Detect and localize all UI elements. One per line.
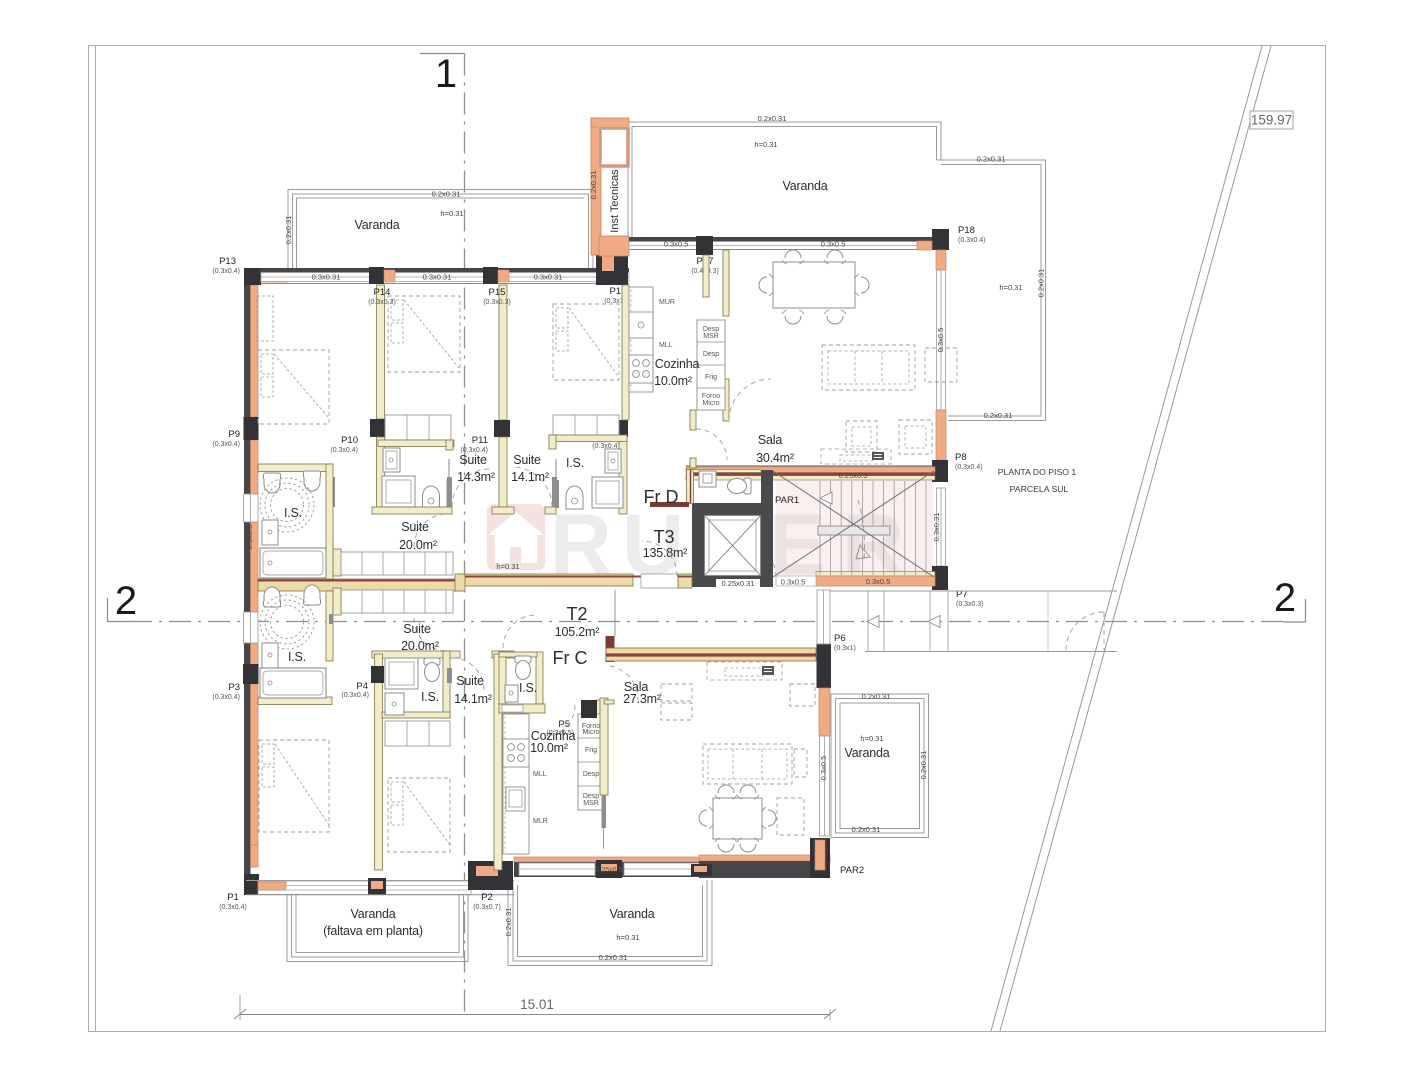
svg-text:I.S.: I.S. — [566, 456, 584, 470]
svg-text:Desp: Desp — [583, 793, 599, 800]
svg-text:PARCELA SUL: PARCELA SUL — [1010, 484, 1069, 494]
svg-text:I.S.: I.S. — [519, 681, 537, 695]
svg-text:I.S.: I.S. — [284, 506, 302, 520]
svg-text:Frig: Frig — [705, 374, 717, 381]
svg-text:14.1m²: 14.1m² — [454, 692, 492, 706]
svg-text:h=0.31: h=0.31 — [616, 933, 639, 942]
svg-text:0.25x0.5: 0.25x0.5 — [839, 471, 868, 480]
svg-text:Varanda: Varanda — [783, 179, 828, 193]
svg-text:MSR: MSR — [703, 333, 719, 340]
svg-text:P15: P15 — [489, 287, 506, 298]
svg-text:0.3x0.5: 0.3x0.5 — [936, 328, 945, 353]
svg-text:0.2x0.31: 0.2x0.31 — [984, 411, 1013, 420]
svg-text:Suite: Suite — [403, 622, 431, 636]
svg-text:(0.3x0.4): (0.3x0.4) — [958, 237, 986, 244]
svg-text:P14: P14 — [374, 287, 391, 298]
svg-text:Suite: Suite — [459, 453, 487, 467]
svg-text:h=0.31: h=0.31 — [860, 734, 883, 743]
svg-text:Micro: Micro — [702, 400, 719, 407]
svg-text:T2: T2 — [566, 604, 587, 624]
svg-text:(0.3x0.4): (0.3x0.4) — [219, 904, 247, 911]
svg-text:(faltava em planta): (faltava em planta) — [323, 924, 423, 938]
svg-text:0.2x0.31: 0.2x0.31 — [852, 825, 881, 834]
svg-text:0.3x0.31: 0.3x0.31 — [312, 273, 341, 282]
svg-text:P10: P10 — [341, 435, 358, 446]
svg-text:(0.3x0.4): (0.3x0.4) — [955, 464, 983, 471]
svg-text:30.4m²: 30.4m² — [756, 451, 794, 465]
svg-text:0.3x0.5: 0.3x0.5 — [781, 578, 806, 587]
svg-text:Varanda: Varanda — [610, 907, 655, 921]
svg-text:MSR: MSR — [583, 800, 599, 807]
svg-text:0.2x0.31: 0.2x0.31 — [599, 953, 628, 962]
svg-text:0.3x0.5: 0.3x0.5 — [866, 577, 891, 586]
svg-text:h=0.31: h=0.31 — [999, 283, 1022, 292]
svg-text:14.3m²: 14.3m² — [457, 470, 495, 484]
svg-text:Fr C: Fr C — [553, 648, 588, 668]
svg-text:(0.3x0.4): (0.3x0.4) — [212, 694, 240, 701]
svg-text:14.1m²: 14.1m² — [511, 470, 549, 484]
svg-text:0.2x0.31: 0.2x0.31 — [432, 190, 461, 199]
svg-text:0.3x0.5: 0.3x0.5 — [819, 756, 828, 781]
svg-text:0.2x0.31: 0.2x0.31 — [504, 908, 513, 937]
svg-text:159.97: 159.97 — [1251, 113, 1292, 128]
svg-text:P3: P3 — [228, 682, 240, 693]
svg-text:1: 1 — [435, 52, 457, 96]
svg-text:h=0.31: h=0.31 — [440, 209, 463, 218]
svg-text:P13: P13 — [219, 256, 236, 267]
svg-text:Sala: Sala — [758, 433, 782, 447]
svg-text:0.3x0.31: 0.3x0.31 — [534, 273, 563, 282]
svg-text:MLL: MLL — [533, 771, 547, 778]
svg-text:0.2x0.31: 0.2x0.31 — [862, 692, 891, 701]
svg-text:0.2x0.31: 0.2x0.31 — [589, 171, 598, 200]
svg-text:Desp: Desp — [703, 351, 719, 358]
svg-text:105.2m²: 105.2m² — [555, 625, 599, 639]
svg-text:2: 2 — [115, 579, 137, 623]
svg-text:15.01: 15.01 — [520, 997, 554, 1012]
svg-text:P1: P1 — [227, 892, 239, 903]
svg-text:0.2x0.31: 0.2x0.31 — [977, 155, 1006, 164]
svg-text:(0.3x0.4): (0.3x0.4) — [341, 692, 369, 699]
svg-text:(0.3x0.4): (0.3x0.4) — [212, 268, 240, 275]
svg-text:Varanda: Varanda — [355, 218, 400, 232]
svg-text:P18: P18 — [958, 225, 975, 236]
svg-text:Forno: Forno — [702, 393, 720, 400]
svg-text:0.2x0.31: 0.2x0.31 — [1037, 269, 1046, 298]
svg-text:Inst Tecnicas: Inst Tecnicas — [609, 169, 621, 233]
svg-text:0.25x0.5: 0.25x0.5 — [596, 867, 623, 874]
svg-text:P2: P2 — [481, 892, 493, 903]
svg-text:MLR: MLR — [533, 818, 548, 825]
svg-text:2: 2 — [1274, 576, 1296, 620]
svg-text:P11: P11 — [472, 435, 488, 446]
svg-text:27.3m²: 27.3m² — [623, 692, 661, 706]
svg-text:Micro: Micro — [582, 729, 599, 736]
svg-text:Suite: Suite — [456, 674, 484, 688]
svg-text:0.25x0.31: 0.25x0.31 — [722, 579, 755, 588]
svg-text:135.8m²: 135.8m² — [643, 546, 687, 560]
svg-text:P6: P6 — [834, 633, 846, 644]
svg-text:Desp: Desp — [583, 771, 599, 778]
svg-text:PAR2: PAR2 — [840, 865, 864, 876]
svg-text:10.0m²: 10.0m² — [530, 741, 568, 755]
svg-text:I.S.: I.S. — [421, 690, 439, 704]
svg-text:Suite: Suite — [513, 453, 541, 467]
svg-text:Varanda: Varanda — [351, 907, 396, 921]
svg-text:0.3x0.31: 0.3x0.31 — [932, 513, 941, 542]
svg-text:0.2x0.31: 0.2x0.31 — [284, 216, 293, 245]
svg-text:0.3x0.5: 0.3x0.5 — [821, 240, 846, 249]
svg-text:P4: P4 — [356, 681, 368, 692]
svg-text:Frig: Frig — [585, 747, 597, 754]
svg-text:MUR: MUR — [659, 299, 675, 306]
svg-text:P8: P8 — [955, 452, 967, 463]
svg-text:(0.3x0.4): (0.3x0.4) — [212, 441, 240, 448]
svg-text:Desp: Desp — [703, 326, 719, 333]
svg-text:0.3x0.5: 0.3x0.5 — [245, 525, 254, 550]
svg-text:PLANTA DO PISO 1: PLANTA DO PISO 1 — [998, 467, 1077, 477]
svg-text:h=0.31: h=0.31 — [496, 562, 519, 571]
svg-text:(0.3x0.3): (0.3x0.3) — [368, 299, 396, 306]
svg-text:0.2x0.31: 0.2x0.31 — [758, 114, 787, 123]
svg-text:10.0m²: 10.0m² — [654, 374, 692, 388]
svg-text:Cozinha: Cozinha — [655, 357, 700, 371]
svg-text:I.S.: I.S. — [288, 650, 306, 664]
svg-text:(0.3x0.4): (0.3x0.4) — [330, 447, 358, 454]
svg-text:0.3x0.31: 0.3x0.31 — [423, 273, 452, 282]
svg-text:P9: P9 — [228, 429, 240, 440]
svg-text:0.3x0.5: 0.3x0.5 — [664, 240, 689, 249]
svg-text:(0.3x1): (0.3x1) — [834, 645, 856, 652]
svg-text:h=0.31: h=0.31 — [754, 140, 777, 149]
svg-text:PAR1: PAR1 — [775, 495, 799, 506]
svg-text:MLL: MLL — [659, 342, 673, 349]
svg-text:Varanda: Varanda — [845, 746, 890, 760]
svg-text:0.2x0.31: 0.2x0.31 — [919, 751, 928, 780]
svg-text:(0.3x0.3): (0.3x0.3) — [956, 601, 984, 608]
svg-text:Suite: Suite — [401, 520, 429, 534]
svg-text:20.0m²: 20.0m² — [401, 639, 439, 653]
svg-text:20.0m²: 20.0m² — [399, 538, 437, 552]
svg-text:(0.3x0.3): (0.3x0.3) — [483, 299, 511, 306]
svg-text:(0.3x0.7): (0.3x0.7) — [473, 904, 501, 911]
svg-text:Fr D: Fr D — [644, 487, 679, 507]
